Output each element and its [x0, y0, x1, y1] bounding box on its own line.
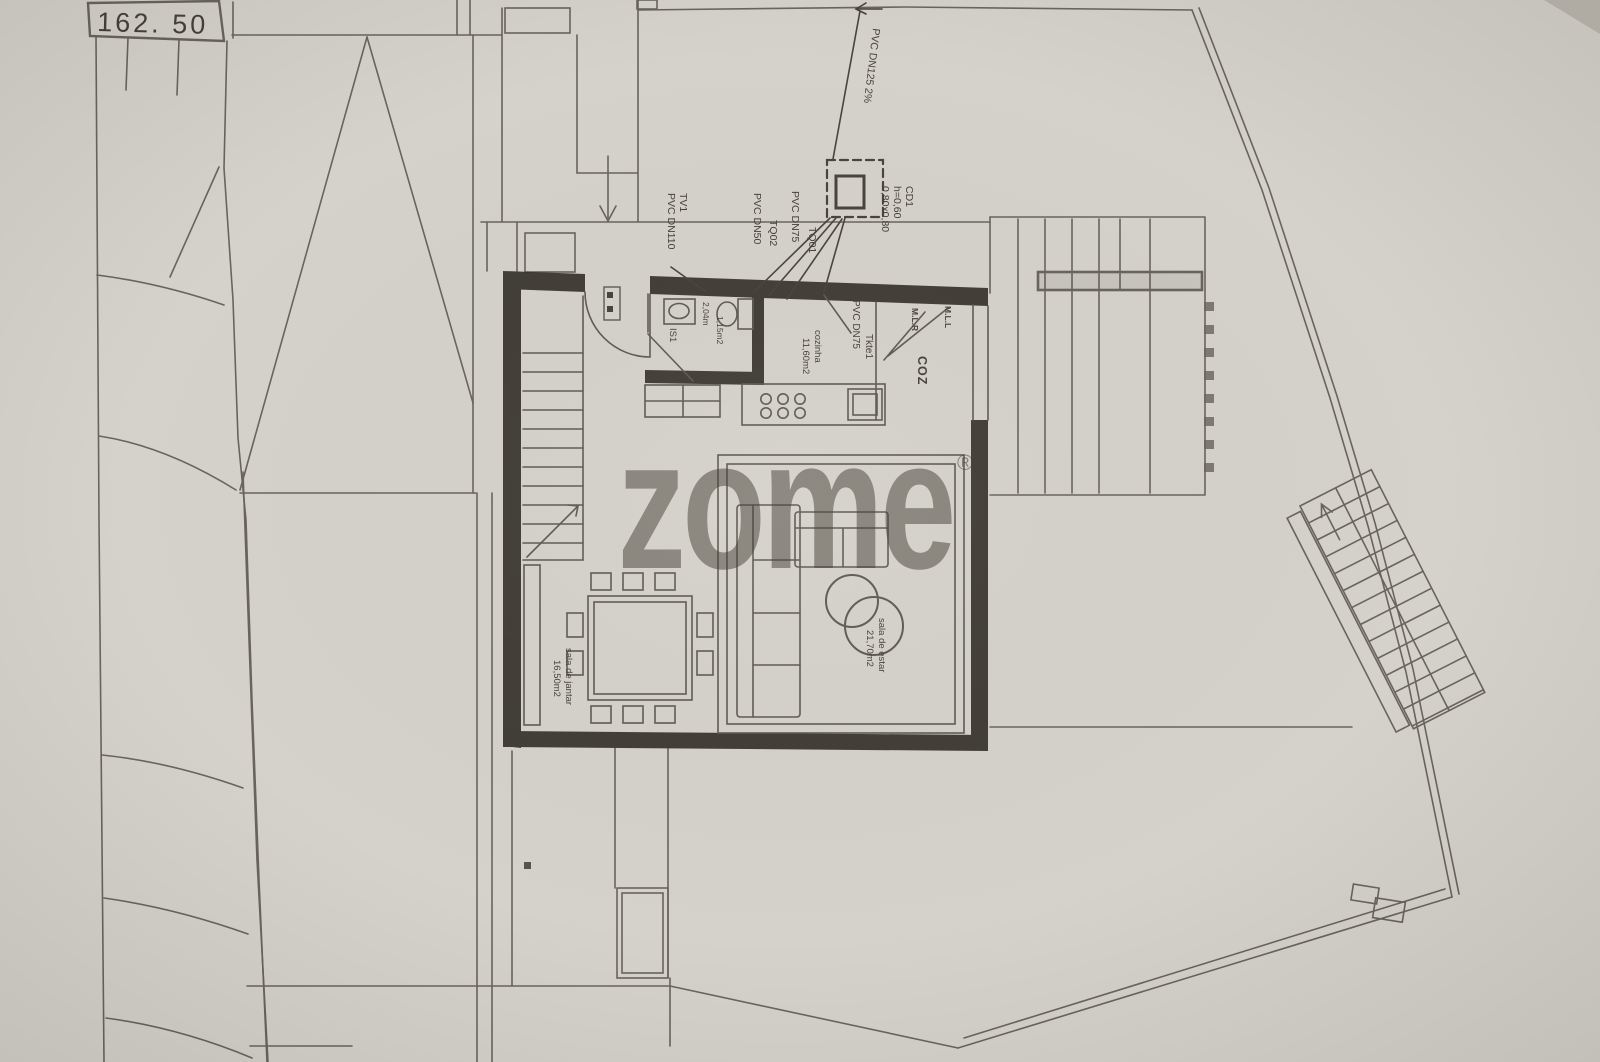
watermark-registered-icon: ®: [957, 450, 973, 475]
scanned-floor-plan-photo: 162. 50 PVC DN125 2% CD1 h=0,60 0,80x0,8…: [0, 0, 1600, 1062]
watermark: zome ®: [617, 402, 973, 608]
floor-plan-drawing: 162. 50 PVC DN125 2% CD1 h=0,60 0,80x0,8…: [0, 0, 1600, 1062]
watermark-logo: zome: [617, 402, 952, 608]
